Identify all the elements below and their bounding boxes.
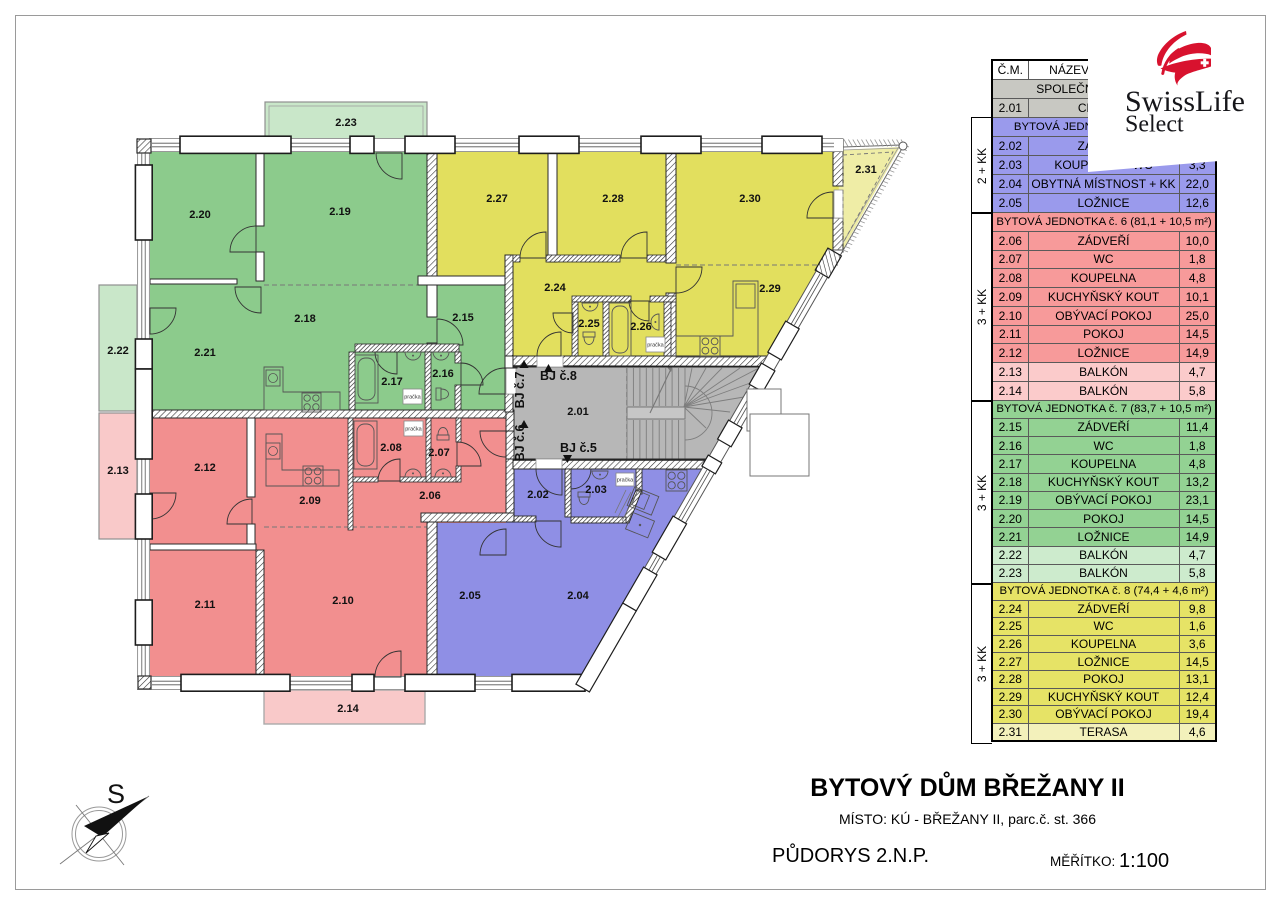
svg-text:Select: Select [1125,112,1184,138]
